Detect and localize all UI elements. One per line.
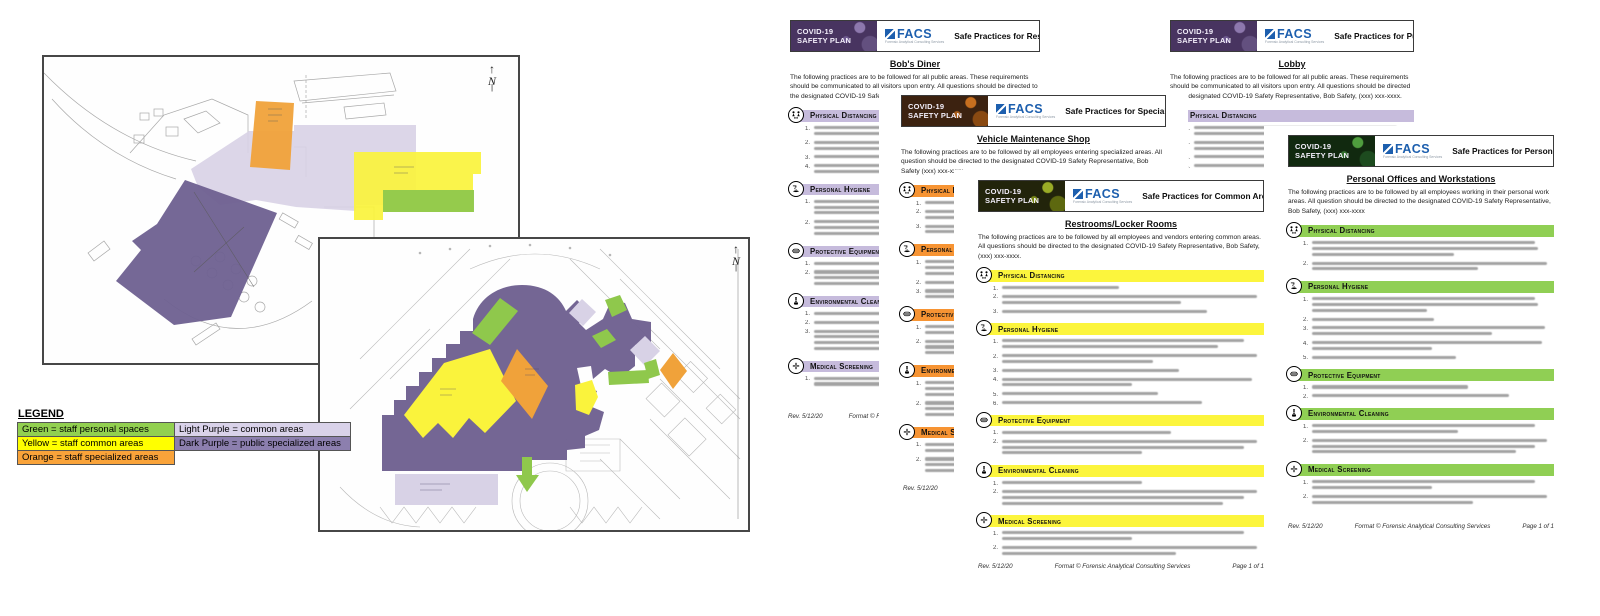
section-medical-screening: Medical Screening1.2. xyxy=(978,514,1264,557)
item-number: 1. xyxy=(805,261,810,267)
facs-logo-mark-icon xyxy=(1265,29,1275,39)
item-number: 4. xyxy=(993,377,998,389)
legend: LEGEND Green = staff personal spaces Lig… xyxy=(18,408,351,465)
facs-logo: FACS Forensic Analytical Consulting Serv… xyxy=(885,28,944,45)
item-number: 1. xyxy=(993,430,998,436)
intro-paragraph: The following practices are to be follow… xyxy=(978,233,1264,261)
section-items: 1.2.3.4.5.6. xyxy=(978,339,1264,407)
section-banner: Medical Screening xyxy=(984,515,1264,527)
blurred-list-item: 1. xyxy=(993,430,1262,436)
section-items: 1.2. xyxy=(1288,385,1554,400)
item-number: 1. xyxy=(1303,424,1308,436)
banner-line1: COVID-19 xyxy=(908,102,988,111)
covid-safety-plan-banner: COVID-19 SAFETY PLAN xyxy=(979,181,1065,211)
zone-staff-specialized xyxy=(250,101,294,170)
section-environmental-cleaning: Environmental Cleaning1.2. xyxy=(1288,407,1554,456)
banner-line2: SAFETY PLAN xyxy=(985,196,1065,205)
facs-logo-mark-icon xyxy=(885,29,895,39)
section-items: 1.2. xyxy=(1288,480,1554,507)
footer-credit: Format © Forensic Analytical Consulting … xyxy=(1355,523,1491,530)
section-personal-hygiene: Personal Hygiene1.2.3.4.5.6. xyxy=(978,322,1264,407)
section-label: Personal Hygiene xyxy=(1308,282,1368,291)
protective-equipment-icon xyxy=(976,412,992,428)
page-footer: Rev. 5/12/20 Format © Forensic Analytica… xyxy=(978,563,1264,570)
blurred-list-item: 5. xyxy=(1303,355,1552,361)
item-number: 2. xyxy=(805,220,810,238)
item-number: 1. xyxy=(916,442,921,454)
item-number: 1. xyxy=(1303,480,1308,492)
facs-logo-tagline: Forensic Analytical Consulting Services xyxy=(1383,156,1442,159)
section-protective-equipment: Protective Equipment1.2. xyxy=(1288,368,1554,400)
section-label: Medical Screening xyxy=(1308,465,1371,474)
physical-distancing-icon xyxy=(1286,222,1302,238)
section-protective-equipment: Protective Equipment1.2. xyxy=(978,414,1264,457)
floor-plan-second: ↑ N | xyxy=(318,237,750,532)
item-number: 2. xyxy=(1303,494,1308,506)
banner-line2: SAFETY PLAN xyxy=(1177,36,1257,45)
section-items: 1.2.3.4.5. xyxy=(1288,297,1554,362)
blurred-list-item: 1. xyxy=(993,481,1262,487)
item-number: 2. xyxy=(993,545,998,557)
intro-paragraph: The following practices are to be follow… xyxy=(1170,73,1414,101)
facs-logo-mark-icon xyxy=(996,104,1006,114)
banner-line1: COVID-19 xyxy=(985,187,1065,196)
item-number: 1. xyxy=(916,325,921,337)
section-banner: Protective Equipment xyxy=(984,415,1264,427)
doc-header: COVID-19 SAFETY PLAN FACS Forensic Analy… xyxy=(1288,135,1554,167)
section-label: Medical Screening xyxy=(810,362,873,371)
facs-logo-mark-icon xyxy=(1383,144,1393,154)
item-number: 3. xyxy=(805,155,810,161)
facs-logo-name: FACS xyxy=(1277,28,1312,41)
facs-logo-tagline: Forensic Analytical Consulting Services xyxy=(996,116,1055,119)
doc-header: COVID-19 SAFETY PLAN FACS Forensic Analy… xyxy=(978,180,1264,212)
section-label: Environmental Cleaning xyxy=(1308,409,1389,418)
physical-distancing-icon xyxy=(899,182,915,198)
blurred-list-item: 5. xyxy=(993,392,1262,398)
item-number: 2. xyxy=(993,439,998,457)
section-label: Physical Distancing xyxy=(1308,226,1375,235)
section-label: Physical Distancing xyxy=(998,271,1065,280)
facs-logo-name: FACS xyxy=(1395,143,1430,156)
banner-line2: SAFETY PLAN xyxy=(1295,151,1375,160)
north-arrow-plan2: ↑ N | xyxy=(732,243,740,269)
page-title: Vehicle Maintenance Shop xyxy=(901,134,1166,144)
item-number: 2. xyxy=(805,320,810,326)
blurred-list-item: 2. xyxy=(993,545,1262,557)
covid-safety-plan-banner: COVID-19 SAFETY PLAN xyxy=(902,96,988,126)
legend-entry-dark-purple: Dark Purple = public specialized areas xyxy=(174,436,351,451)
footer-page: Page 1 of 1 xyxy=(1232,563,1264,570)
item-number: 1. xyxy=(1303,297,1308,315)
footer-rev: Rev. 5/12/20 xyxy=(788,413,823,420)
item-number: 3. xyxy=(1303,326,1308,338)
item-number: 2. xyxy=(916,457,921,475)
medical-screening-icon xyxy=(788,358,804,374)
facs-logo-name: FACS xyxy=(1008,103,1043,116)
blurred-list-item: 2. xyxy=(1303,394,1552,400)
item-number: 1. xyxy=(916,201,921,207)
environmental-cleaning-icon xyxy=(788,293,804,309)
zone-common-areas xyxy=(395,474,498,505)
item-number: 1. xyxy=(993,531,998,543)
doc-header: COVID-19 SAFETY PLAN FACS Forensic Analy… xyxy=(901,95,1166,127)
sections: Physical Distancing1.2.Personal Hygiene1… xyxy=(1288,224,1554,506)
item-number: 3. xyxy=(993,309,998,315)
item-number: 2. xyxy=(993,354,998,366)
facs-logo-tagline: Forensic Analytical Consulting Services xyxy=(885,41,944,44)
section-medical-screening: Medical Screening1.2. xyxy=(1288,463,1554,506)
item-number: 2. xyxy=(916,280,921,286)
banner-line1: COVID-19 xyxy=(1295,142,1375,151)
physical-distancing-icon xyxy=(788,107,804,123)
blurred-list-item: 4. xyxy=(1303,341,1552,353)
section-items: 1.2. xyxy=(1288,241,1554,274)
banner-line2: SAFETY PLAN xyxy=(797,36,877,45)
item-number: 3. xyxy=(805,329,810,353)
item-number: 3. xyxy=(993,368,998,374)
doc-header: COVID-19 SAFETY PLAN FACS Forensic Analy… xyxy=(1170,20,1414,52)
section-environmental-cleaning: Environmental Cleaning1.2. xyxy=(978,464,1264,507)
section-banner: Personal Hygiene xyxy=(984,323,1264,335)
facs-logo-name: FACS xyxy=(1085,188,1120,201)
blurred-list-item: 1. xyxy=(993,286,1262,292)
section-banner: Environmental Cleaning xyxy=(984,465,1264,477)
banner-line1: COVID-19 xyxy=(797,27,877,36)
blurred-list-item: 1. xyxy=(1303,385,1552,391)
personal-hygiene-icon xyxy=(1286,278,1302,294)
blurred-list-item: 2. xyxy=(1303,261,1552,273)
item-number: 2. xyxy=(1303,394,1308,400)
environmental-cleaning-icon xyxy=(899,362,915,378)
item-number: 4. xyxy=(1303,341,1308,353)
doc-header-title: Safe Practices for Common Areas xyxy=(1142,191,1263,201)
legend-table: Green = staff personal spaces Light Purp… xyxy=(18,423,351,465)
section-banner: Protective Equipment xyxy=(1294,369,1554,381)
blurred-list-item: 2. xyxy=(993,354,1262,366)
section-label: Protective Equipment xyxy=(1308,371,1381,380)
physical-distancing-icon xyxy=(976,267,992,283)
item-number: 5. xyxy=(1303,355,1308,361)
blurred-list-item: 2. xyxy=(1303,494,1552,506)
blurred-list-item: 4. xyxy=(993,377,1262,389)
north-arrow-plan1: ↑ N | xyxy=(488,63,496,89)
footer-rev: Rev. 5/12/20 xyxy=(1288,523,1323,530)
facs-logo-mark-icon xyxy=(1073,189,1083,199)
item-number: 3. xyxy=(916,224,921,236)
footer-rev: Rev. 5/12/20 xyxy=(903,485,938,492)
item-number: 2. xyxy=(916,401,921,419)
legend-entry-orange: Orange = staff specialized areas xyxy=(17,450,175,465)
footer-rev: Rev. 5/12/20 xyxy=(978,563,1013,570)
section-items: 1.2.3. xyxy=(978,286,1264,316)
item-number: 3. xyxy=(916,289,921,301)
item-number: 1. xyxy=(993,286,998,292)
banner-line2: SAFETY PLAN xyxy=(908,111,988,120)
section-label: Personal Hygiene xyxy=(810,185,870,194)
section-label: Physical Distancing xyxy=(1190,111,1257,120)
medical-screening-icon xyxy=(899,424,915,440)
covid-safety-plan-banner: COVID-19 SAFETY PLAN xyxy=(791,21,877,51)
blurred-list-item: 3. xyxy=(993,368,1262,374)
section-banner: Personal Hygiene xyxy=(1294,281,1554,293)
doc-header-title: Safe Practices for Specialized Areas xyxy=(1065,106,1165,116)
section-banner: Physical Distancing xyxy=(1294,225,1554,237)
legend-entry-yellow: Yellow = staff common areas xyxy=(17,436,175,451)
section-personal-hygiene: Personal Hygiene1.2.3.4.5. xyxy=(1288,280,1554,361)
intro-paragraph: The following practices are to be follow… xyxy=(1288,188,1554,216)
item-number: 1. xyxy=(1303,241,1308,259)
item-number: 2. xyxy=(1303,261,1308,273)
blurred-list-item: 2. xyxy=(1303,317,1552,323)
item-number: 1. xyxy=(916,260,921,278)
zone-staff-personal xyxy=(383,190,474,212)
banner-line1: COVID-19 xyxy=(1177,27,1257,36)
doc-header-title: Safe Practices for Personal Areas xyxy=(1452,146,1553,156)
section-physical-distancing: Physical Distancing1.2. xyxy=(1288,224,1554,273)
section-banner: Physical Distancing xyxy=(1176,110,1414,122)
section-label: Protective Equipment xyxy=(810,247,883,256)
section-label: Physical Distancing xyxy=(810,111,877,120)
facs-logo: FACS Forensic Analytical Consulting Serv… xyxy=(1073,188,1132,205)
section-banner: Medical Screening xyxy=(1294,464,1554,476)
footer-credit: Format © Forensic Analytical Consulting … xyxy=(1055,563,1191,570)
item-number: 1. xyxy=(1303,385,1308,391)
item-number: 2. xyxy=(1303,438,1308,456)
section-label: Personal Hygiene xyxy=(998,325,1058,334)
section-physical-distancing: Physical Distancing1.2.3. xyxy=(978,269,1264,315)
section-banner: Environmental Cleaning xyxy=(1294,408,1554,420)
facs-logo-tagline: Forensic Analytical Consulting Services xyxy=(1073,201,1132,204)
page-title: Restrooms/Locker Rooms xyxy=(978,219,1264,229)
facs-logo: FACS Forensic Analytical Consulting Serv… xyxy=(1383,143,1442,160)
item-number: 1. xyxy=(805,311,810,317)
legend-entry-green: Green = staff personal spaces xyxy=(17,422,175,437)
item-number: 2. xyxy=(805,140,810,152)
legend-empty-cell xyxy=(174,450,351,463)
section-items: 1.2. xyxy=(978,531,1264,558)
floor-plan-second-drawing xyxy=(320,239,748,530)
section-label: Protective Equipment xyxy=(998,416,1071,425)
covid-safety-plan-banner: COVID-19 SAFETY PLAN xyxy=(1289,136,1375,166)
item-number: 1. xyxy=(993,481,998,487)
doc-header: COVID-19 SAFETY PLAN FACS Forensic Analy… xyxy=(790,20,1040,52)
item-number: 1. xyxy=(805,376,810,388)
blurred-list-item: 1. xyxy=(993,339,1262,351)
covid-safety-plan-banner: COVID-19 SAFETY PLAN xyxy=(1171,21,1257,51)
blurred-list-item: 1. xyxy=(1303,297,1552,315)
document-safe-practices-common-areas: COVID-19 SAFETY PLAN FACS Forensic Analy… xyxy=(954,170,1288,596)
item-number: 2. xyxy=(916,209,921,221)
blurred-list-item: 1. xyxy=(1303,480,1552,492)
blurred-list-item: 2. xyxy=(1303,438,1552,456)
item-number: 5. xyxy=(993,392,998,398)
item-number: 1. xyxy=(805,126,810,138)
blurred-list-item: 2. xyxy=(993,439,1262,457)
item-number: 2. xyxy=(1303,317,1308,323)
doc-header-title: Safe Practices for Restaurants xyxy=(954,31,1039,41)
blurred-list-item: 6. xyxy=(993,401,1262,407)
item-number: 6. xyxy=(993,401,998,407)
page-title: Bob's Diner xyxy=(790,59,1040,69)
blurred-list-item: 1. xyxy=(1303,424,1552,436)
blurred-list-item: 2. xyxy=(993,489,1262,507)
protective-equipment-icon xyxy=(899,306,915,322)
item-number: 4. xyxy=(805,164,810,176)
facs-logo-name: FACS xyxy=(897,28,932,41)
blurred-list-item: 1. xyxy=(993,531,1262,543)
section-items: 1.2. xyxy=(1288,424,1554,457)
page-footer: Rev. 5/12/20 Format © Forensic Analytica… xyxy=(1288,523,1554,530)
item-number: 2. xyxy=(993,489,998,507)
section-label: Environmental Cleaning xyxy=(998,466,1079,475)
footer-page: Page 1 of 1 xyxy=(1522,523,1554,530)
blurred-list-item: 2. xyxy=(993,294,1262,306)
environmental-cleaning-icon xyxy=(976,462,992,478)
document-safe-practices-personal-areas: COVID-19 SAFETY PLAN FACS Forensic Analy… xyxy=(1264,126,1578,550)
facs-logo: FACS Forensic Analytical Consulting Serv… xyxy=(996,103,1055,120)
legend-title: LEGEND xyxy=(18,408,351,420)
zone-public-specialized xyxy=(116,180,277,325)
item-number: 1. xyxy=(805,199,810,217)
blurred-list-item: 3. xyxy=(993,309,1262,315)
blurred-list-item: 3. xyxy=(1303,326,1552,338)
section-label: Medical Screening xyxy=(998,517,1061,526)
section-items: 1.2. xyxy=(978,430,1264,457)
blurred-list-item: 1. xyxy=(1303,241,1552,259)
item-number: 1. xyxy=(916,381,921,399)
item-number: 2. xyxy=(805,270,810,288)
doc-header-title: Safe Practices for Public Areas xyxy=(1334,31,1413,41)
section-banner: Physical Distancing xyxy=(984,270,1264,282)
item-number: 2. xyxy=(993,294,998,306)
legend-entry-light-purple: Light Purple = common areas xyxy=(174,422,351,437)
section-items: 1.2. xyxy=(978,481,1264,508)
page-title: Personal Offices and Workstations xyxy=(1288,174,1554,184)
sections: Physical Distancing1.2.3.Personal Hygien… xyxy=(978,269,1264,557)
item-number: 1. xyxy=(993,339,998,351)
facs-logo-tagline: Forensic Analytical Consulting Services xyxy=(1265,41,1324,44)
zone-staff-specialized xyxy=(660,353,687,389)
item-number: 2. xyxy=(916,339,921,357)
zone-staff-personal xyxy=(608,370,649,385)
page-title: Lobby xyxy=(1170,59,1414,69)
facs-logo: FACS Forensic Analytical Consulting Serv… xyxy=(1265,28,1324,45)
protective-equipment-icon xyxy=(788,243,804,259)
personal-hygiene-icon xyxy=(788,181,804,197)
